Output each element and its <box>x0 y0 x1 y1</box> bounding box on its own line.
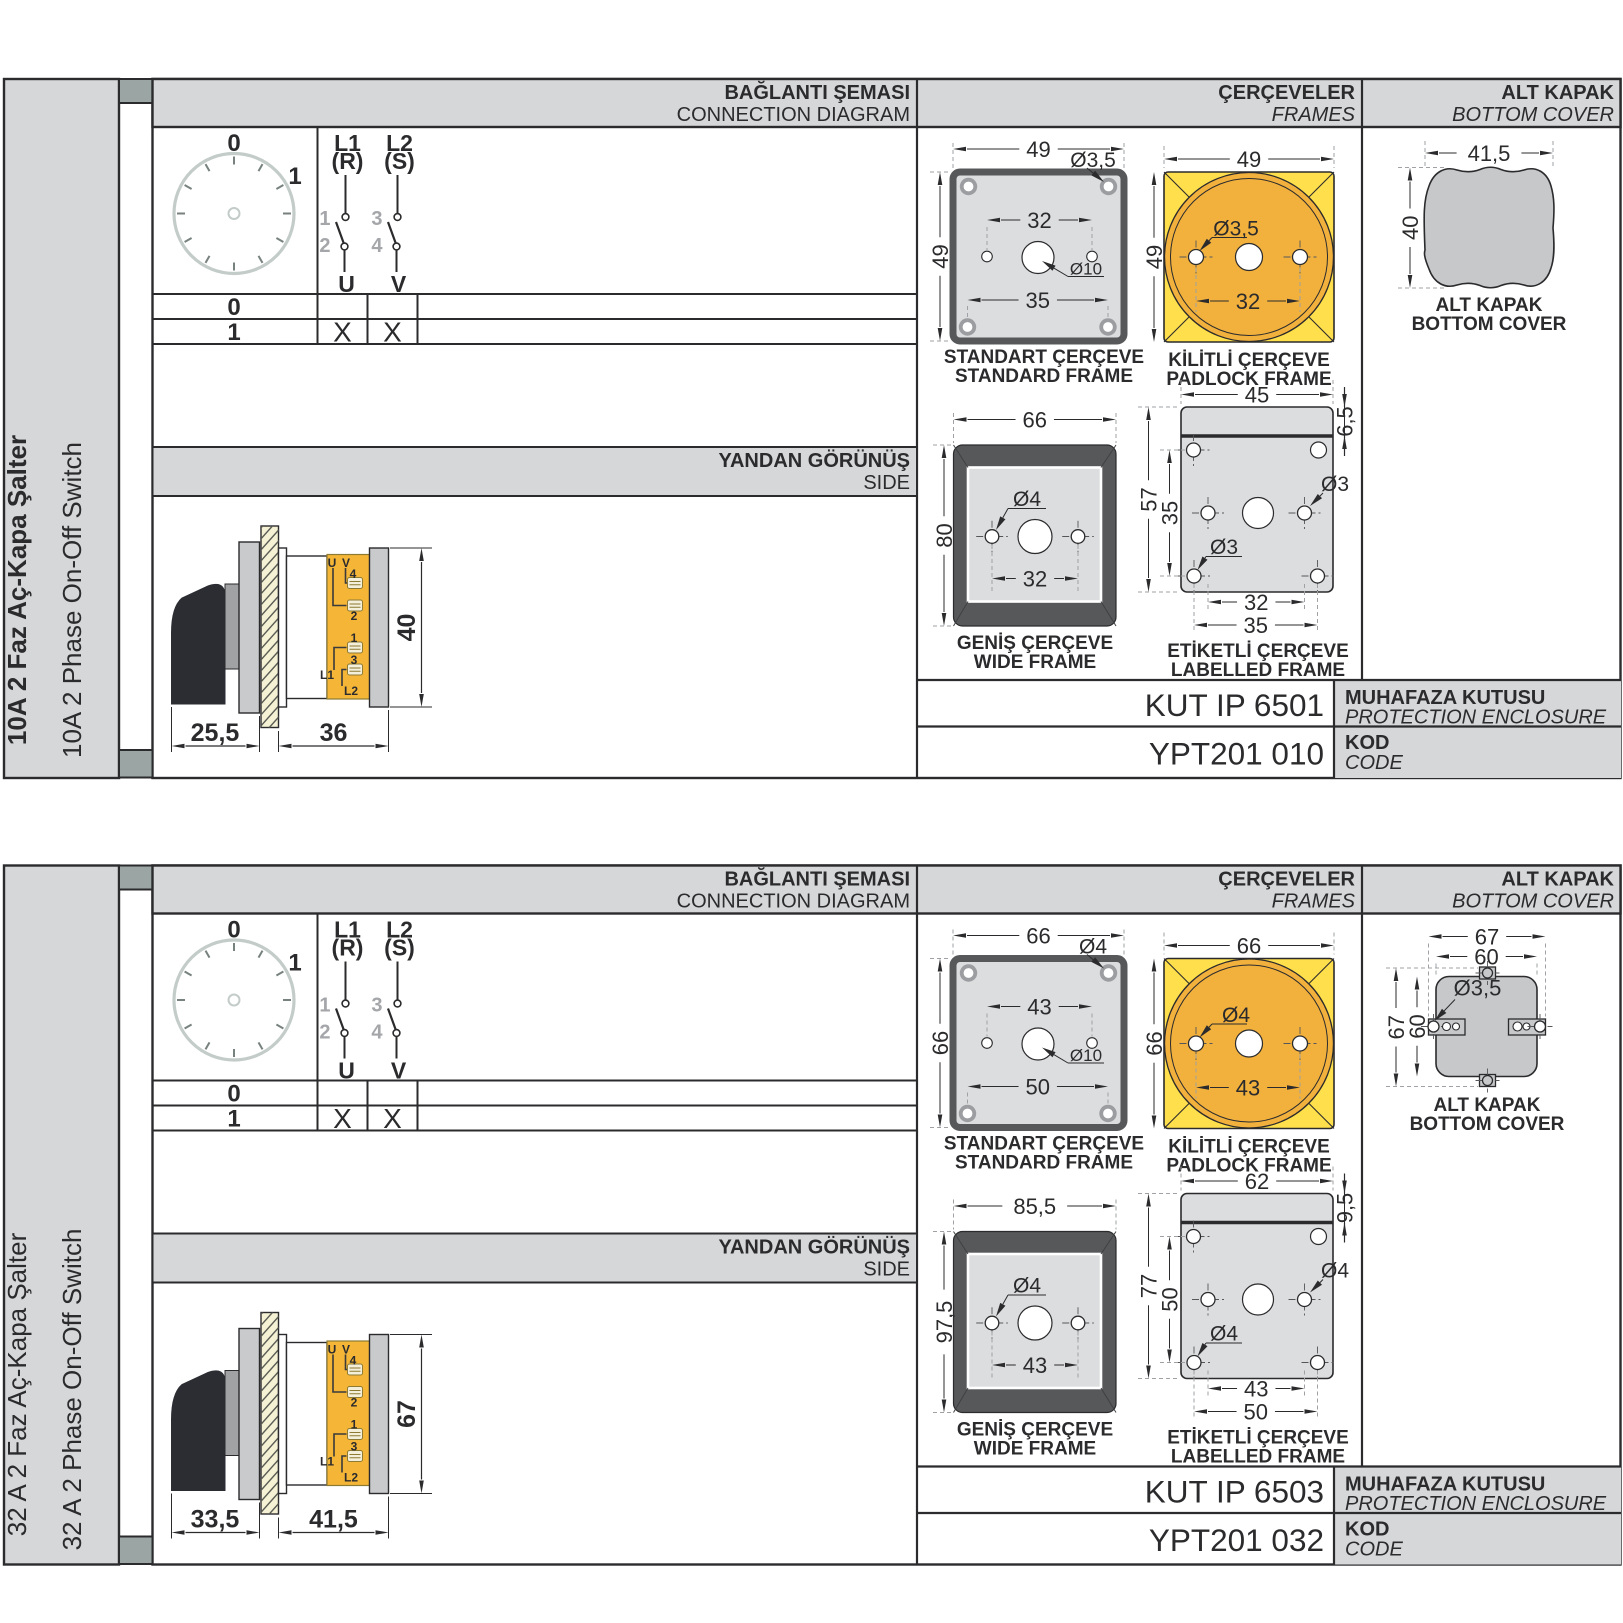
svg-text:KOD: KOD <box>1345 1519 1389 1541</box>
svg-text:CODE: CODE <box>1345 752 1403 774</box>
svg-text:CONNECTION DIAGRAM: CONNECTION DIAGRAM <box>677 891 910 913</box>
svg-text:SIDE: SIDE <box>863 472 910 494</box>
svg-text:Ø3,5: Ø3,5 <box>1070 149 1116 172</box>
svg-text:U: U <box>328 556 337 570</box>
svg-text:66: 66 <box>1026 923 1050 948</box>
svg-text:FRAMES: FRAMES <box>1272 104 1356 126</box>
svg-text:25,5: 25,5 <box>191 719 240 747</box>
svg-text:2: 2 <box>319 235 330 257</box>
svg-text:X: X <box>383 1103 402 1134</box>
svg-text:9,5: 9,5 <box>1332 1193 1357 1224</box>
svg-text:BOTTOM COVER: BOTTOM COVER <box>1452 104 1614 126</box>
svg-text:Ø3: Ø3 <box>1321 473 1349 496</box>
svg-text:0: 0 <box>227 130 240 157</box>
svg-text:10A 2 Phase On-Off Switch: 10A 2 Phase On-Off Switch <box>57 442 87 758</box>
svg-text:(R): (R) <box>332 148 364 174</box>
svg-text:SIDE: SIDE <box>863 1259 910 1281</box>
svg-text:1: 1 <box>319 208 330 230</box>
svg-text:0: 0 <box>227 1081 240 1108</box>
svg-text:10A 2 Faz Aç-Kapa Şalter: 10A 2 Faz Aç-Kapa Şalter <box>2 435 32 745</box>
svg-text:Ø10: Ø10 <box>1070 1046 1102 1065</box>
svg-text:LABELLED FRAME: LABELLED FRAME <box>1171 1447 1345 1468</box>
svg-text:4: 4 <box>350 1354 357 1368</box>
svg-text:6,5: 6,5 <box>1332 406 1357 437</box>
svg-text:FRAMES: FRAMES <box>1272 891 1356 913</box>
svg-text:KİLİTLİ ÇERÇEVE: KİLİTLİ ÇERÇEVE <box>1168 1137 1330 1158</box>
svg-text:Ø4: Ø4 <box>1321 1260 1349 1283</box>
svg-text:Ø4: Ø4 <box>1013 488 1041 511</box>
svg-text:YANDAN GÖRÜNÜŞ: YANDAN GÖRÜNÜŞ <box>718 1236 910 1259</box>
svg-text:L2: L2 <box>344 684 358 698</box>
svg-text:1: 1 <box>288 950 301 977</box>
svg-text:4: 4 <box>350 567 357 581</box>
svg-text:66: 66 <box>1023 407 1047 432</box>
svg-text:43: 43 <box>1027 994 1051 1019</box>
svg-text:L1: L1 <box>320 1455 334 1469</box>
svg-text:32: 32 <box>1236 289 1260 314</box>
svg-text:KİLİTLİ ÇERÇEVE: KİLİTLİ ÇERÇEVE <box>1168 350 1330 371</box>
svg-text:ÇERÇEVELER: ÇERÇEVELER <box>1218 869 1355 891</box>
svg-text:62: 62 <box>1245 1169 1269 1194</box>
svg-text:BOTTOM COVER: BOTTOM COVER <box>1412 314 1567 335</box>
svg-text:3: 3 <box>351 653 358 667</box>
svg-text:85,5: 85,5 <box>1013 1194 1056 1219</box>
svg-text:1: 1 <box>288 163 301 190</box>
svg-text:49: 49 <box>1237 147 1261 172</box>
svg-text:80: 80 <box>932 523 957 547</box>
svg-text:L1: L1 <box>320 668 334 682</box>
svg-text:43: 43 <box>1236 1075 1260 1100</box>
svg-text:1: 1 <box>351 1418 358 1432</box>
svg-text:Ø4: Ø4 <box>1079 936 1107 959</box>
svg-text:66: 66 <box>1237 933 1261 958</box>
svg-text:1: 1 <box>227 319 240 346</box>
svg-text:1: 1 <box>319 995 330 1017</box>
svg-text:Ø4: Ø4 <box>1013 1275 1041 1298</box>
svg-text:43: 43 <box>1023 1353 1047 1378</box>
svg-text:ETİKETLİ ÇERÇEVE: ETİKETLİ ÇERÇEVE <box>1167 641 1349 662</box>
svg-text:GENİŞ ÇERÇEVE: GENİŞ ÇERÇEVE <box>957 1420 1113 1441</box>
svg-text:ALT KAPAK: ALT KAPAK <box>1501 82 1614 104</box>
svg-text:32: 32 <box>1244 590 1268 615</box>
svg-text:U: U <box>328 1343 337 1357</box>
svg-text:YPT201 032: YPT201 032 <box>1149 1522 1324 1558</box>
svg-text:WIDE FRAME: WIDE FRAME <box>974 1439 1096 1460</box>
svg-text:BOTTOM COVER: BOTTOM COVER <box>1410 1114 1565 1135</box>
svg-text:YANDAN GÖRÜNÜŞ: YANDAN GÖRÜNÜŞ <box>718 449 910 472</box>
svg-text:STANDART ÇERÇEVE: STANDART ÇERÇEVE <box>944 347 1144 368</box>
svg-text:3: 3 <box>371 208 382 230</box>
svg-text:KUT IP 6503: KUT IP 6503 <box>1145 1474 1324 1510</box>
svg-text:4: 4 <box>371 235 383 257</box>
svg-text:97,5: 97,5 <box>932 1301 957 1344</box>
svg-text:43: 43 <box>1244 1376 1268 1401</box>
svg-text:STANDART ÇERÇEVE: STANDART ÇERÇEVE <box>944 1134 1144 1155</box>
svg-text:ALT KAPAK: ALT KAPAK <box>1436 295 1543 316</box>
svg-text:4: 4 <box>371 1022 383 1044</box>
svg-text:KOD: KOD <box>1345 732 1389 754</box>
svg-text:49: 49 <box>928 244 953 268</box>
svg-text:41,5: 41,5 <box>309 1506 358 1534</box>
svg-text:67: 67 <box>393 1400 421 1428</box>
svg-text:ÇERÇEVELER: ÇERÇEVELER <box>1218 82 1355 104</box>
svg-text:60: 60 <box>1405 1014 1430 1038</box>
svg-text:50: 50 <box>1026 1074 1050 1099</box>
svg-text:33,5: 33,5 <box>191 1506 240 1534</box>
svg-text:(S): (S) <box>384 148 415 174</box>
svg-text:45: 45 <box>1245 382 1269 407</box>
svg-text:X: X <box>383 317 402 348</box>
svg-text:PROTECTION ENCLOSURE: PROTECTION ENCLOSURE <box>1345 1493 1607 1515</box>
svg-text:Ø3,5: Ø3,5 <box>1454 976 1502 1001</box>
svg-text:1: 1 <box>351 631 358 645</box>
svg-text:L2: L2 <box>344 1471 358 1485</box>
svg-text:PROTECTION ENCLOSURE: PROTECTION ENCLOSURE <box>1345 707 1607 729</box>
svg-text:LABELLED FRAME: LABELLED FRAME <box>1171 660 1345 681</box>
svg-text:41,5: 41,5 <box>1468 141 1511 166</box>
svg-text:Ø4: Ø4 <box>1210 1323 1238 1346</box>
svg-text:BAĞLANTI ŞEMASI: BAĞLANTI ŞEMASI <box>724 80 910 104</box>
svg-text:50: 50 <box>1244 1399 1268 1424</box>
svg-text:2: 2 <box>319 1022 330 1044</box>
svg-text:66: 66 <box>928 1031 953 1055</box>
svg-text:35: 35 <box>1157 501 1182 525</box>
svg-text:40: 40 <box>393 614 421 642</box>
svg-text:WIDE FRAME: WIDE FRAME <box>974 652 1096 673</box>
svg-text:KUT IP 6501: KUT IP 6501 <box>1145 687 1324 723</box>
svg-text:(R): (R) <box>332 935 364 961</box>
svg-text:CONNECTION DIAGRAM: CONNECTION DIAGRAM <box>677 104 910 126</box>
svg-text:32 A 2 Faz Aç-Kapa Şalter: 32 A 2 Faz Aç-Kapa Şalter <box>2 1232 32 1536</box>
svg-text:ETİKETLİ ÇERÇEVE: ETİKETLİ ÇERÇEVE <box>1167 1428 1349 1449</box>
svg-text:CODE: CODE <box>1345 1539 1403 1561</box>
svg-text:ALT KAPAK: ALT KAPAK <box>1434 1095 1541 1116</box>
svg-text:2: 2 <box>351 609 358 623</box>
svg-text:35: 35 <box>1026 288 1050 313</box>
svg-text:Ø10: Ø10 <box>1070 260 1102 279</box>
svg-text:YPT201 010: YPT201 010 <box>1149 736 1324 772</box>
svg-text:GENİŞ ÇERÇEVE: GENİŞ ÇERÇEVE <box>957 633 1113 654</box>
svg-text:Ø3: Ø3 <box>1210 536 1238 559</box>
svg-text:32 A 2 Phase On-Off Switch: 32 A 2 Phase On-Off Switch <box>57 1229 87 1551</box>
svg-text:66: 66 <box>1142 1031 1167 1055</box>
svg-text:35: 35 <box>1244 613 1268 638</box>
svg-text:49: 49 <box>1142 245 1167 269</box>
svg-text:(S): (S) <box>384 935 415 961</box>
svg-text:3: 3 <box>351 1440 358 1454</box>
svg-text:X: X <box>333 317 352 348</box>
svg-text:49: 49 <box>1026 137 1050 162</box>
svg-text:2: 2 <box>351 1396 358 1410</box>
svg-text:40: 40 <box>1398 216 1423 240</box>
svg-text:0: 0 <box>227 917 240 944</box>
svg-text:32: 32 <box>1023 566 1047 591</box>
svg-text:X: X <box>333 1103 352 1134</box>
svg-text:STANDARD FRAME: STANDARD FRAME <box>955 366 1133 387</box>
svg-text:ALT KAPAK: ALT KAPAK <box>1501 869 1614 891</box>
svg-text:BOTTOM COVER: BOTTOM COVER <box>1452 891 1614 913</box>
svg-text:32: 32 <box>1027 208 1051 233</box>
svg-text:50: 50 <box>1157 1287 1182 1311</box>
svg-text:60: 60 <box>1474 944 1498 969</box>
svg-text:36: 36 <box>320 719 348 747</box>
svg-text:BAĞLANTI ŞEMASI: BAĞLANTI ŞEMASI <box>724 867 910 891</box>
svg-text:STANDARD FRAME: STANDARD FRAME <box>955 1153 1133 1174</box>
svg-text:3: 3 <box>371 995 382 1017</box>
svg-text:1: 1 <box>227 1106 240 1133</box>
svg-text:0: 0 <box>227 294 240 321</box>
